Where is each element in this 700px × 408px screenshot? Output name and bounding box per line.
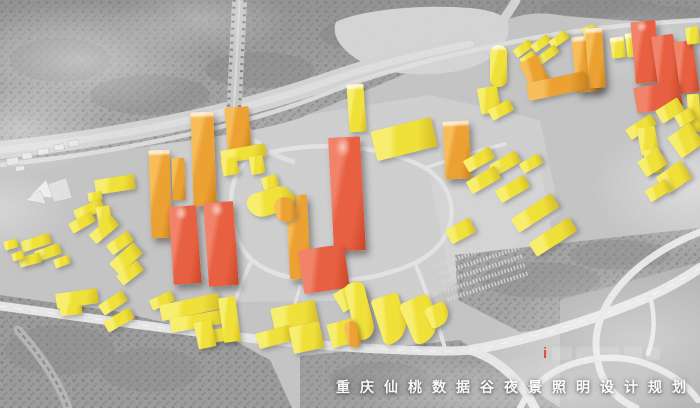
watermark: i: [543, 342, 662, 364]
watermark-ghost-block: [552, 347, 572, 360]
project-title: 重庆仙桃数据谷夜景照明设计规划: [336, 377, 696, 397]
watermark-i-mark: i: [543, 345, 547, 362]
watermark-ghost-block: [646, 347, 660, 360]
watermark-ghost-block: [624, 347, 642, 360]
watermark-ghost-block: [596, 347, 620, 360]
masterplan-rendering: i 重庆仙桃数据谷夜景照明设计规划: [0, 0, 700, 408]
watermark-ghost-block: [576, 347, 592, 360]
